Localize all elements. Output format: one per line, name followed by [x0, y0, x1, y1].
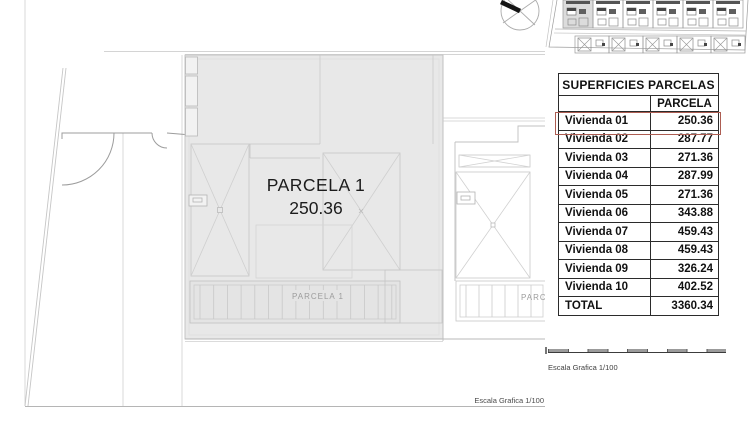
hip-roof-house-2	[456, 172, 530, 278]
parcel-2-area: PARC	[443, 55, 546, 341]
table-row[interactable]: Vivienda 10402.52	[559, 278, 719, 297]
table-row[interactable]: Vivienda 01250.36	[559, 112, 719, 131]
canopy	[459, 155, 530, 167]
pergola-label: PARCELA 1	[292, 292, 344, 301]
surfaces-table: SUPERFICIES PARCELAS PARCELA Vivienda 01…	[558, 73, 719, 316]
table-row[interactable]: Vivienda 03271.36	[559, 149, 719, 168]
table-row[interactable]: Vivienda 09326.24	[559, 260, 719, 279]
parcel-area-value: 250.36	[289, 198, 343, 218]
pergola-parcel-2: PARC	[456, 281, 546, 321]
table-row[interactable]: Vivienda 02287.77	[559, 130, 719, 149]
overview-bottom-row-units	[575, 36, 745, 53]
graphic-scale-bar	[548, 349, 726, 353]
adjacent-pergola-label: PARC	[521, 293, 546, 302]
parcel-title: PARCELA 1	[267, 175, 366, 195]
table-row[interactable]: Vivienda 07459.43	[559, 223, 719, 242]
info-panel: SUPERFICIES PARCELAS PARCELA Vivienda 01…	[545, 0, 756, 432]
table-row[interactable]: Vivienda 05271.36	[559, 186, 719, 205]
site-plan-drawing: PARCELA 1 PARCELA 1 250.36	[0, 0, 546, 432]
fence-posts	[186, 57, 198, 136]
parcel-1-area[interactable]: PARCELA 1 PARCELA 1 250.36	[185, 55, 443, 342]
empty-header-cell	[559, 96, 651, 112]
table-row[interactable]: Vivienda 08459.43	[559, 241, 719, 260]
table-row-total: TOTAL3360.34	[559, 297, 719, 316]
north-arrow-icon	[501, 0, 539, 30]
overview-top-row-units	[563, 0, 743, 28]
table-row[interactable]: Vivienda 04287.99	[559, 167, 719, 186]
surfaces-table-wrap: SUPERFICIES PARCELAS PARCELA Vivienda 01…	[558, 73, 718, 316]
panel-scale-note: Escala Grafica 1/100	[548, 363, 618, 372]
scale-bar-origin-tick	[545, 347, 547, 354]
plan-viewer: PARCELA 1 PARCELA 1 250.36	[0, 0, 756, 432]
overview-mini-plan[interactable]	[545, 0, 756, 58]
table-row[interactable]: Vivienda 06343.88	[559, 204, 719, 223]
wall-light-2	[457, 192, 475, 204]
pergola-parcel-1: PARCELA 1	[190, 281, 400, 323]
gate-wall	[62, 133, 185, 185]
drawing-scale-note: Escala Grafica 1/100	[474, 396, 544, 405]
table-title: SUPERFICIES PARCELAS	[559, 74, 719, 96]
wall-light-1	[189, 195, 207, 206]
column-header-parcela: PARCELA	[651, 96, 719, 112]
